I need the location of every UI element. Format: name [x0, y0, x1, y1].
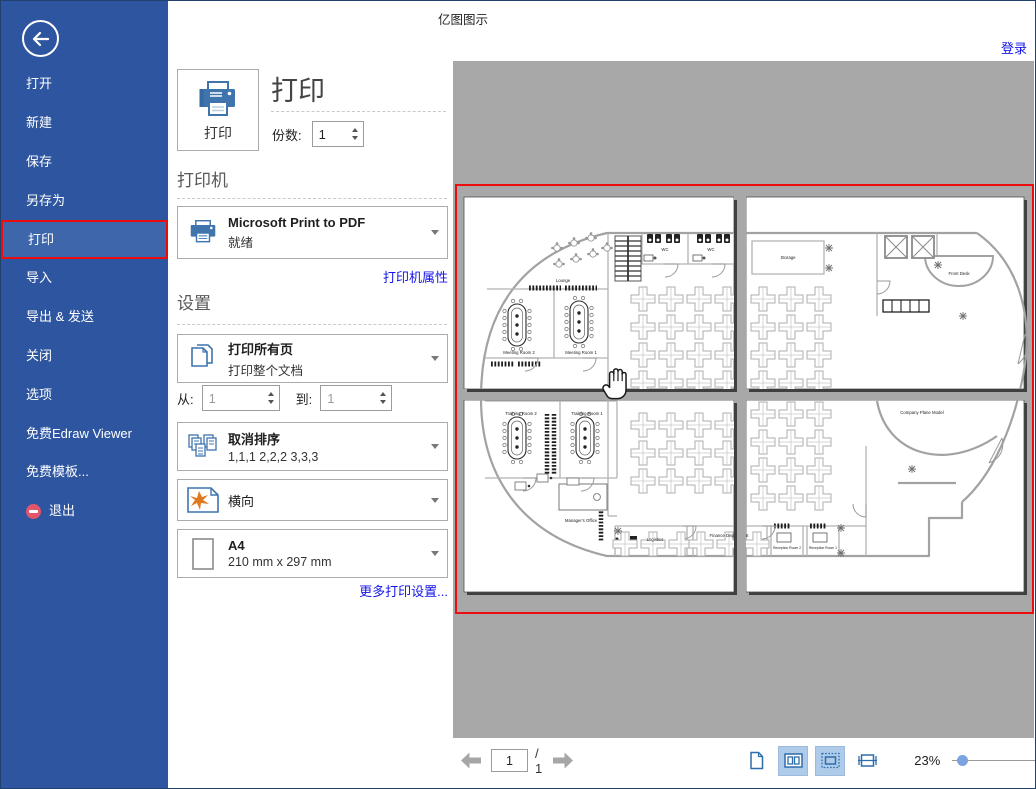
- titlebar: 亿图图示: [168, 1, 1035, 31]
- login-link[interactable]: 登录: [1001, 38, 1027, 57]
- print-button[interactable]: 打印: [177, 69, 259, 151]
- floorplan-preview: Lounge WC WC Meeting Room 2 Meeting Room…: [457, 186, 1032, 612]
- printer-small-icon: [186, 220, 220, 246]
- chevron-down-icon: [431, 444, 439, 449]
- collate-select[interactable]: 取消排序 1,1,1 2,2,2 3,3,3: [177, 422, 448, 471]
- sidebar-item-free-templates[interactable]: 免费模板...: [1, 453, 168, 492]
- divider: [271, 111, 446, 112]
- to-label: 到:: [296, 389, 313, 408]
- printer-icon: [198, 80, 238, 118]
- paper-size-icon: [186, 538, 220, 570]
- sidebar-item-exit[interactable]: 退出: [1, 492, 168, 531]
- sidebar-item-saveas[interactable]: 另存为: [1, 181, 168, 220]
- stepper-up-icon: [352, 128, 358, 132]
- sidebar-item-free-viewer[interactable]: 免费Edraw Viewer: [1, 414, 168, 453]
- landscape-icon: [186, 487, 220, 513]
- sidebar: 打开 新建 保存 另存为 打印 导入 导出 & 发送 关闭 选项 免费Edraw…: [1, 1, 168, 788]
- multi-page-view-button[interactable]: [778, 746, 808, 776]
- room-label: Training Room 2: [505, 411, 537, 416]
- fit-width-view-button[interactable]: [852, 746, 882, 776]
- page-range-inputs: 从: 1 到: 1: [177, 385, 448, 411]
- arrow-left-icon: [31, 31, 51, 47]
- collate-icon: [186, 431, 220, 463]
- orientation-label: 横向: [228, 491, 254, 510]
- zoom-slider-thumb[interactable]: [957, 755, 968, 766]
- room-label: Reception Room 2: [773, 546, 801, 550]
- paper-size-select[interactable]: A4 210 mm x 297 mm: [177, 529, 448, 578]
- stepper-up-icon: [380, 392, 386, 396]
- sidebar-item-options[interactable]: 选项: [1, 375, 168, 414]
- divider: [177, 198, 447, 199]
- printer-properties-link[interactable]: 打印机属性: [177, 267, 448, 286]
- room-label: WC: [661, 247, 668, 252]
- preview-highlight-box: Lounge WC WC Meeting Room 2 Meeting Room…: [455, 184, 1034, 614]
- copies-stepper[interactable]: 1: [312, 121, 364, 147]
- zoom-control: 23%: [914, 753, 1036, 768]
- room-label: Meeting Room 1: [565, 350, 597, 355]
- back-button[interactable]: [22, 20, 59, 57]
- page-total-label: / 1: [535, 746, 542, 776]
- from-stepper-arrows[interactable]: [263, 386, 279, 410]
- divider: [177, 324, 447, 325]
- fit-page-view-button[interactable]: [815, 746, 845, 776]
- collate-title: 取消排序: [228, 429, 318, 448]
- sidebar-item-export-send[interactable]: 导出 & 发送: [1, 298, 168, 337]
- printer-name: Microsoft Print to PDF: [228, 215, 365, 230]
- from-value: 1: [203, 386, 263, 410]
- fit-width-icon: [858, 751, 877, 770]
- copies-label: 份数:: [272, 125, 302, 144]
- copies-row: 份数: 1: [272, 121, 364, 147]
- page-number-input[interactable]: [491, 749, 528, 772]
- room-label: Training Room 1: [571, 411, 603, 416]
- room-label: Reception Room 1: [809, 546, 837, 550]
- sidebar-item-new[interactable]: 新建: [1, 104, 168, 143]
- to-stepper-arrows[interactable]: [375, 386, 391, 410]
- room-label: Lounge: [556, 278, 571, 283]
- exit-icon: [26, 504, 41, 519]
- room-label: Manager's Office: [565, 518, 598, 523]
- zoom-percent-label: 23%: [914, 753, 940, 768]
- sidebar-item-save[interactable]: 保存: [1, 143, 168, 182]
- more-print-settings-link[interactable]: 更多打印设置...: [177, 581, 448, 600]
- arrow-right-icon: [552, 752, 573, 769]
- room-label: Logistics: [647, 537, 664, 542]
- from-stepper[interactable]: 1: [202, 385, 280, 411]
- page-title: 打印: [271, 69, 325, 108]
- sidebar-item-import[interactable]: 导入: [1, 259, 168, 298]
- print-preview-area[interactable]: Lounge WC WC Meeting Room 2 Meeting Room…: [453, 61, 1034, 738]
- room-label: Company Plane Model: [900, 410, 944, 415]
- paper-subtitle: 210 mm x 297 mm: [228, 555, 332, 569]
- stepper-down-icon: [380, 400, 386, 404]
- multi-page-icon: [784, 751, 803, 770]
- room-label: WC: [707, 247, 714, 252]
- preview-toolbar: / 1: [453, 738, 1034, 783]
- sidebar-item-close[interactable]: 关闭: [1, 337, 168, 376]
- print-panel: 打印 打印 份数: 1 打印机: [168, 31, 453, 788]
- single-page-icon: [747, 751, 766, 770]
- range-subtitle: 打印整个文档: [228, 360, 303, 379]
- stepper-down-icon: [268, 400, 274, 404]
- previous-page-button[interactable]: [461, 752, 482, 769]
- chevron-down-icon: [431, 498, 439, 503]
- room-label: Front Desk: [948, 271, 970, 276]
- single-page-view-button[interactable]: [741, 746, 771, 776]
- stepper-up-icon: [268, 392, 274, 396]
- paper-title: A4: [228, 538, 332, 553]
- sidebar-item-print[interactable]: 打印: [1, 220, 168, 259]
- collate-subtitle: 1,1,1 2,2,2 3,3,3: [228, 450, 318, 464]
- page-range-select[interactable]: 打印所有页 打印整个文档: [177, 334, 448, 383]
- to-stepper[interactable]: 1: [320, 385, 392, 411]
- stepper-down-icon: [352, 136, 358, 140]
- settings-section-title: 设置: [177, 289, 211, 314]
- range-title: 打印所有页: [228, 339, 303, 358]
- chevron-down-icon: [431, 230, 439, 235]
- app-window: 打开 新建 保存 另存为 打印 导入 导出 & 发送 关闭 选项 免费Edraw…: [0, 0, 1036, 789]
- next-page-button[interactable]: [552, 752, 573, 769]
- chevron-down-icon: [431, 356, 439, 361]
- printer-select[interactable]: Microsoft Print to PDF 就绪: [177, 206, 448, 259]
- from-label: 从:: [177, 389, 194, 408]
- pages-icon: [186, 343, 220, 375]
- window-title: 亿图图示: [438, 9, 488, 28]
- copies-stepper-arrows[interactable]: [347, 122, 363, 146]
- orientation-select[interactable]: 横向: [177, 479, 448, 521]
- zoom-slider[interactable]: [952, 755, 1036, 767]
- arrow-left-icon: [461, 752, 482, 769]
- to-value: 1: [321, 386, 375, 410]
- copies-value: 1: [313, 122, 347, 146]
- page-navigation: / 1: [461, 746, 573, 776]
- room-label: Meeting Room 2: [503, 350, 535, 355]
- sidebar-menu: 打开 新建 保存 另存为 打印 导入 导出 & 发送 关闭 选项 免费Edraw…: [1, 65, 168, 531]
- fit-page-icon: [821, 751, 840, 770]
- sidebar-item-open[interactable]: 打开: [1, 65, 168, 104]
- chevron-down-icon: [431, 551, 439, 556]
- room-label: Storage: [780, 255, 796, 260]
- printer-status: 就绪: [228, 232, 365, 251]
- printer-section-title: 打印机: [177, 166, 228, 191]
- view-mode-buttons: [741, 746, 882, 776]
